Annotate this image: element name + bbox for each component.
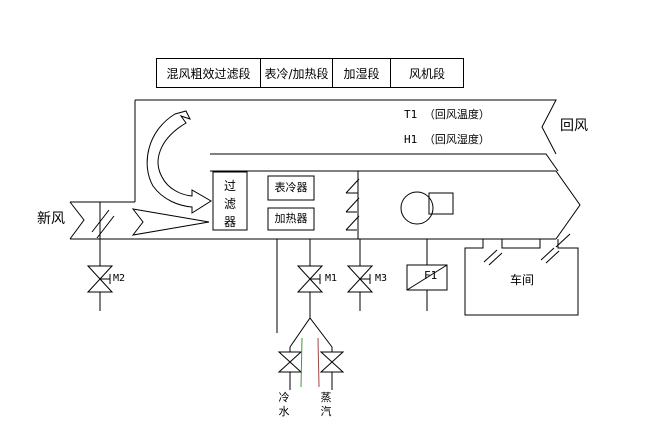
cold-water-flow-arrow — [301, 338, 302, 387]
fresh-flow-arrow-icon — [133, 209, 209, 235]
supply-duct — [70, 171, 580, 239]
h1-sensor-label: H1 （回风湿度） — [404, 134, 490, 146]
cold-water-label: 冷水 — [277, 391, 291, 419]
return-air-label: 回风 — [560, 119, 588, 134]
humidifier-icon — [346, 171, 359, 239]
return-flow-arrow-icon — [147, 111, 211, 213]
m2-valve-icon — [88, 266, 112, 311]
m3-valve-icon — [348, 239, 372, 311]
m1-valve-label: M1 — [325, 273, 337, 284]
t1-sensor-label: T1 （回风温度） — [404, 109, 490, 121]
cold-water-arrowhead-icon — [299, 329, 309, 340]
supply-header — [290, 318, 332, 390]
section-cool-heat: 表冷/加热段 — [261, 59, 333, 87]
section-fan: 风机段 — [391, 59, 463, 87]
return-duct — [135, 100, 558, 202]
section-humidify: 加湿段 — [333, 59, 391, 87]
steam-valve-icon — [321, 352, 343, 372]
cooler-label: 表冷器 — [268, 182, 314, 194]
heater-label: 加热器 — [268, 213, 314, 225]
cold-water-valve-icon — [279, 352, 301, 372]
m3-valve-label: M3 — [375, 273, 387, 284]
fan-icon — [401, 192, 433, 224]
fresh-air-damper-icon — [92, 202, 114, 266]
filter-label: 过滤器 — [222, 177, 238, 231]
hvac-schematic: 混风粗效过滤段 表冷/加热段 加湿段 风机段 T1 （回风温度） H1 （回风湿… — [0, 0, 663, 423]
steam-flow-arrow — [318, 338, 319, 387]
f1-device-label: F1 — [424, 270, 437, 282]
steam-label: 蒸汽 — [319, 391, 333, 419]
m2-valve-label: M2 — [113, 273, 125, 284]
m1-valve-icon — [298, 239, 322, 318]
ahu-section-row: 混风粗效过滤段 表冷/加热段 加湿段 风机段 — [156, 58, 464, 88]
fresh-air-label: 新风 — [37, 212, 65, 227]
section-mix-filter: 混风粗效过滤段 — [157, 59, 261, 87]
workshop-label: 车间 — [466, 274, 578, 287]
